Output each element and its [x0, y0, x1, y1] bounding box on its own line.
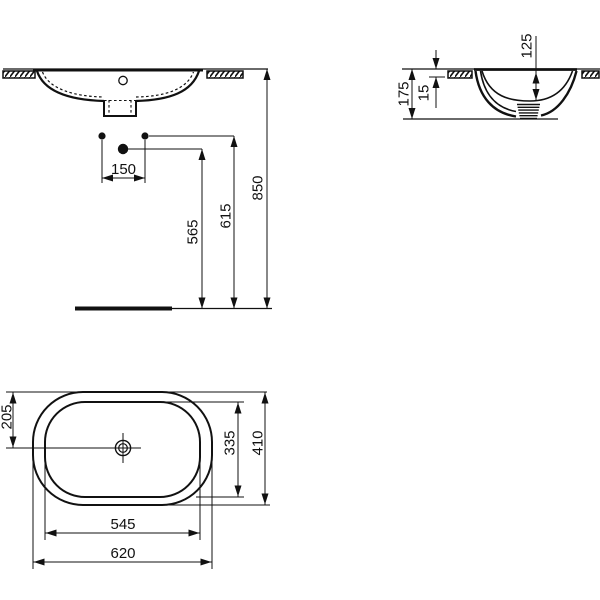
front-view: 150 565 615 850 [3, 69, 272, 311]
bowl-inner-dashed-left [43, 72, 105, 97]
washbasin-dimension-drawing: 150 565 615 850 [0, 0, 600, 600]
dimension-15: 15 [416, 50, 446, 108]
dim-label-175: 175 [396, 81, 413, 106]
dim-label-15: 15 [416, 85, 433, 102]
waste-outlet-dot [118, 144, 128, 154]
dimension-850: 850 [250, 69, 268, 309]
bowl-inner-dashed-right [136, 72, 194, 97]
overflow-hole-icon [119, 76, 127, 84]
dim-label-850: 850 [250, 175, 267, 200]
drain-thread-lines [517, 105, 540, 119]
countertop-hatch-right [582, 71, 599, 78]
dim-label-205: 205 [0, 404, 16, 429]
bowl-wall-edge-left [481, 71, 517, 112]
dim-label-125: 125 [519, 33, 536, 58]
dim-label-620: 620 [110, 545, 135, 562]
fixing-dot-right [141, 132, 148, 139]
fixing-dot-left [98, 132, 105, 139]
dimension-205: 205 [0, 393, 16, 448]
countertop-hatch-left [448, 71, 472, 78]
plan-view: 205 335 410 545 620 [0, 392, 270, 569]
countertop-hatch-left [3, 71, 35, 78]
dimension-175: 175 [396, 69, 413, 119]
bowl-outer-right [541, 71, 577, 116]
dim-label-150: 150 [111, 161, 136, 178]
side-view: 175 15 125 [396, 33, 600, 119]
dimension-620: 620 [33, 452, 212, 569]
dim-label-410: 410 [250, 430, 267, 455]
dimension-410: 410 [148, 393, 270, 506]
dim-label-545: 545 [110, 516, 135, 533]
drain-symbol [6, 433, 141, 463]
dim-label-335: 335 [222, 430, 239, 455]
dimension-565: 565 [127, 149, 202, 309]
bowl-interior-line [482, 71, 573, 101]
floor-bar [75, 307, 172, 311]
countertop-hatch-right [207, 71, 243, 78]
bowl-outline-right [136, 71, 199, 101]
dim-label-615: 615 [218, 203, 235, 228]
dim-label-565: 565 [185, 219, 202, 244]
dimension-125: 125 [519, 33, 537, 100]
technical-drawing-page: 150 565 615 850 [0, 0, 600, 600]
